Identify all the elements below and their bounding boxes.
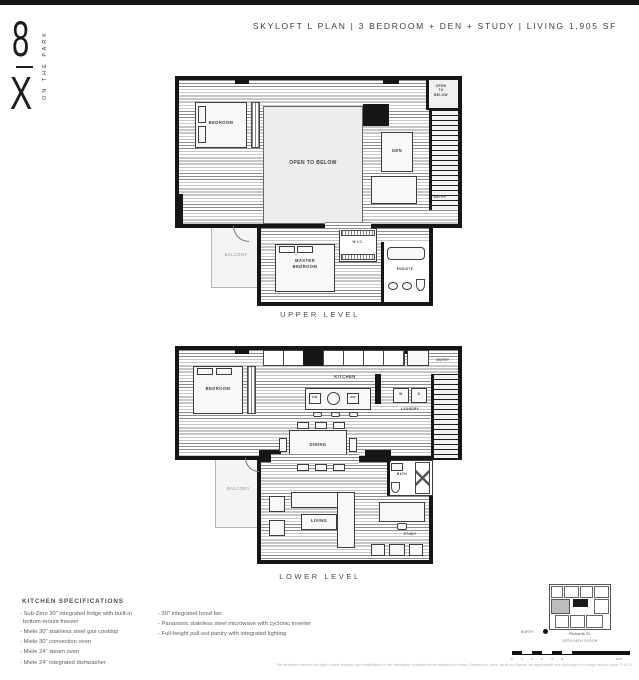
toilet (391, 482, 400, 493)
living-label: LIVING (301, 518, 337, 524)
wall-opening (271, 454, 359, 464)
bedroom-label: BEDROOM (193, 386, 243, 392)
wall-segment (375, 374, 381, 404)
scale-tick: 4 (550, 657, 554, 661)
wall-segment (383, 76, 399, 84)
keyplan-unit (580, 586, 593, 598)
kitchen-specifications: KITCHEN SPECIFICATIONS - Sub-Zero 30" in… (18, 598, 348, 672)
dining-label: DINING (289, 442, 347, 448)
wall-segment (363, 104, 389, 126)
media-unit (409, 544, 423, 556)
closet-shelf (341, 230, 375, 236)
kitchen-counter (263, 350, 405, 366)
logo-numeral: 8 (12, 14, 29, 64)
staircase (431, 374, 458, 458)
dryer-label: D (411, 392, 427, 396)
scale-max-label: 10 ft (616, 657, 622, 661)
study-desk (379, 502, 425, 522)
media-unit (389, 544, 405, 556)
armchair (269, 520, 285, 536)
den-sofa (371, 176, 417, 204)
north-label: NORTH (521, 630, 534, 634)
floorplan-sheet: SKYLOFT L PLAN | 3 BEDROOM + DEN + STUDY… (0, 0, 639, 680)
closet-shelf (341, 254, 375, 260)
open-to-below-corner-label: OPEN TO BELOW (426, 84, 456, 97)
keyplan-unit (551, 586, 563, 598)
keyplan-unit (586, 615, 603, 628)
bedroom-label: BEDROOM (195, 120, 247, 126)
scale-baseline (512, 654, 630, 655)
scale-tick: 3 (540, 657, 544, 661)
balcony-label: BALCONY (215, 486, 262, 492)
chair (297, 422, 309, 429)
ensuite-label: ENSUITE (383, 267, 427, 271)
pillow (297, 246, 313, 253)
cooktop (303, 350, 323, 366)
floor-range-label: 35TH-36TH FLOOR (546, 639, 614, 643)
laundry-label: LAUNDRY (387, 407, 433, 411)
chair (315, 422, 327, 429)
wall-segment (175, 194, 183, 224)
sink (391, 463, 403, 471)
master-bedroom-label: MASTER BEDROOM (275, 258, 335, 269)
entry-label: ENTRY (421, 195, 459, 199)
specs-left-column: - Sub-Zero 30" integrated fridge with bu… (20, 611, 148, 670)
north-indicator-icon (543, 629, 548, 634)
chair (315, 464, 327, 471)
specs-heading: KITCHEN SPECIFICATIONS (22, 598, 124, 605)
keyplan-unit (594, 599, 609, 614)
chair (333, 464, 345, 471)
study-label: STUDY (385, 532, 435, 536)
spec-item: - Miele 30" convection oven (20, 639, 148, 647)
spec-item: - 30" integrated hood fan (158, 611, 338, 619)
street-label: Richards St. (550, 631, 610, 636)
sink (388, 282, 398, 290)
dishwasher-label: DW (308, 396, 322, 400)
spec-item: - Panasonic stainless steel microwave wi… (158, 621, 338, 629)
specs-right-column: - 30" integrated hood fan - Panasonic st… (158, 611, 338, 642)
lower-level-plan: BEDROOM KITCHEN DW MW W D LAUNDRY ENTRY … (175, 346, 465, 568)
armchair (269, 496, 285, 512)
scale-tick: 5 (560, 657, 564, 661)
open-to-below-label: OPEN TO BELOW (263, 160, 363, 167)
scale-tick: 1 (520, 657, 524, 661)
scale-tick: 2 (530, 657, 534, 661)
stool (313, 412, 322, 417)
keyplan-highlighted-unit (551, 599, 570, 614)
sink (402, 282, 412, 290)
key-plan (549, 584, 611, 630)
scale-bar: 0 1 2 3 4 5 10 ft (512, 651, 632, 663)
spec-item: - Full-height pull-out pantry with integ… (158, 631, 338, 639)
upper-level-plan: OPEN TO BELOW BEDROOM OPEN TO BELOW DEN … (175, 76, 465, 308)
wall-segment (365, 450, 391, 462)
upper-level-caption: UPPER LEVEL (175, 310, 465, 319)
keyplan-unit (570, 615, 585, 628)
stool (349, 412, 358, 417)
top-border-bar (0, 0, 639, 5)
desk-chair (397, 523, 407, 530)
bathtub (387, 247, 425, 260)
keyplan-core (573, 599, 588, 607)
keyplan-unit (555, 615, 569, 628)
plan-title: SKYLOFT L PLAN | 3 BEDROOM + DEN + STUDY… (253, 21, 617, 31)
keyplan-unit (564, 586, 579, 598)
chair (333, 422, 345, 429)
den-label: DEN (381, 148, 413, 154)
kitchen-label: KITCHEN (315, 374, 375, 380)
pillow (279, 246, 295, 253)
bath-label: BATH (389, 472, 415, 476)
pillow (198, 126, 206, 143)
stool (331, 412, 340, 417)
lower-level-caption: LOWER LEVEL (175, 572, 465, 581)
spec-item: - Miele 30" stainless steel gas cooktop (20, 629, 148, 637)
spec-item: - Miele 24" integrated dishwasher (20, 660, 148, 668)
closet (247, 366, 256, 414)
chair (297, 464, 309, 471)
entry-label: ENTRY (425, 358, 461, 362)
logo-wordmark: ON THE PARK (42, 20, 52, 110)
spec-item: - Sub-Zero 30" integrated fridge with bu… (20, 611, 148, 626)
keyplan-unit (594, 586, 609, 598)
balcony-label: BALCONY (211, 252, 261, 258)
closet (251, 102, 260, 148)
wic-label: W.I.C. (339, 240, 377, 244)
wall-segment (235, 346, 249, 354)
media-unit (371, 544, 385, 556)
toilet (416, 279, 425, 291)
spec-item: - Miele 24" steam oven (20, 649, 148, 657)
sofa (337, 492, 355, 548)
scale-tick: 0 (510, 657, 514, 661)
shower (415, 462, 430, 494)
pillow (216, 368, 232, 375)
logo-letter: X (10, 70, 32, 116)
microwave-label: MW (346, 396, 360, 400)
wall-opening (325, 222, 371, 230)
island-sink (327, 392, 340, 405)
wall-segment (235, 76, 249, 84)
chair (279, 438, 287, 452)
pillow (197, 368, 213, 375)
washer-label: W (393, 392, 409, 396)
disclaimer-text: The developer reserves the right to make… (175, 663, 633, 667)
chair (349, 438, 357, 452)
